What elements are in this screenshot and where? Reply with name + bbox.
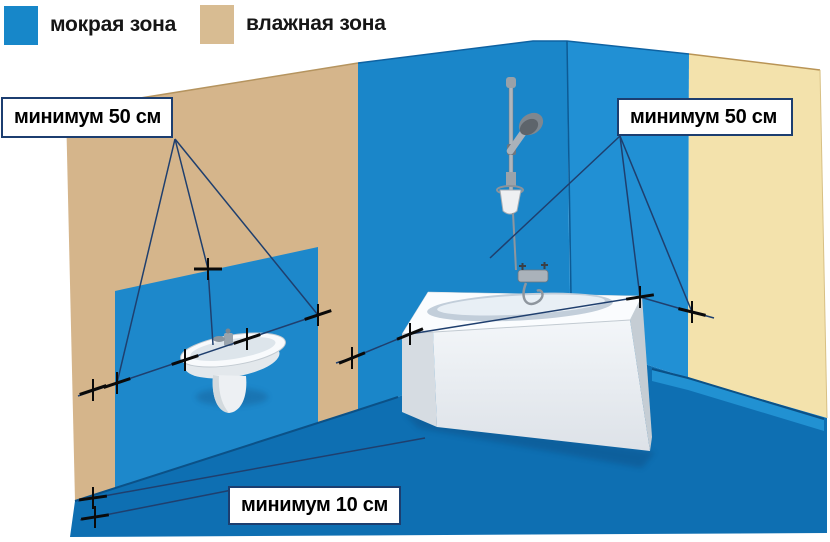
- sink-faucet-spout: [213, 336, 225, 342]
- bathtub-left-face: [402, 330, 437, 427]
- dimension-label-bath: минимум 50 см: [617, 98, 793, 136]
- sink-faucet-knob: [226, 329, 231, 334]
- dimension-label-bath-text: минимум 50 см: [630, 106, 777, 129]
- damp-zone-label: влажная зона: [246, 12, 386, 36]
- mixer-tap-body: [518, 270, 548, 282]
- wet-zone-label: мокрая зона: [50, 13, 176, 37]
- wet-zone-color-swatch: [4, 6, 38, 45]
- shower-rail-top-cap: [506, 77, 516, 88]
- legend-item-wet-zone: мокрая зона: [4, 4, 176, 46]
- legend-item-damp-zone: влажная зона: [200, 3, 386, 45]
- bathtub: [402, 289, 652, 451]
- bathroom-zones-diagram: мокрая зона влажная зона минимум 50 см м…: [0, 0, 830, 542]
- scene-svg: [0, 0, 830, 542]
- cup-clamp: [506, 172, 516, 186]
- dimension-label-sink-text: минимум 50 см: [14, 106, 161, 129]
- dimension-label-floor: минимум 10 см: [228, 486, 401, 525]
- dimension-label-floor-text: минимум 10 см: [241, 494, 388, 517]
- damp-zone-color-swatch: [200, 5, 234, 44]
- dimension-label-sink: минимум 50 см: [1, 97, 173, 138]
